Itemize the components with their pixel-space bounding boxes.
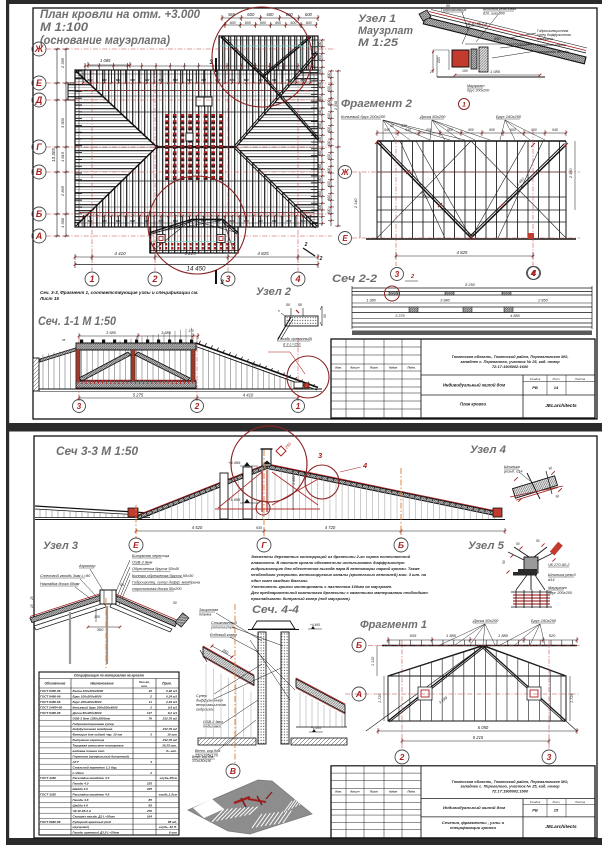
svg-text:95: 95 [62, 338, 66, 342]
svg-text:спецификации кровли: спецификации кровли [450, 825, 497, 830]
svg-text:брус 200x200: брус 200x200 [467, 89, 489, 93]
svg-text:+4.495: +4.495 [310, 623, 320, 627]
svg-text:15: 15 [30, 604, 34, 608]
svg-text:600: 600 [468, 128, 474, 132]
svg-text:ГОСТ 3282: ГОСТ 3282 [40, 776, 56, 780]
svg-text:Прим.: Прим. [162, 682, 172, 686]
svg-text:4 825: 4 825 [257, 251, 269, 256]
svg-text:0,92 м3: 0,92 м3 [166, 689, 177, 693]
svg-text:13 305: 13 305 [51, 148, 56, 162]
svg-text:540: 540 [401, 124, 407, 128]
svg-text:Лист: Лист [369, 366, 378, 370]
svg-text:L=20см: L=20см [73, 771, 85, 775]
svg-text:Стадия: Стадия [530, 800, 541, 804]
svg-text:1 390: 1 390 [60, 217, 65, 228]
svg-text:600: 600 [318, 164, 322, 170]
svg-text:Узел 5: Узел 5 [468, 540, 505, 552]
svg-text:600: 600 [327, 113, 331, 119]
svg-text:Узел 3: Узел 3 [43, 540, 78, 552]
svg-text:Б: Б [356, 640, 362, 650]
svg-text:600: 600 [260, 21, 266, 25]
svg-text:Доска 50x200: Доска 50x200 [419, 114, 446, 119]
svg-text:4 720: 4 720 [325, 525, 336, 530]
svg-text:4 880: 4 880 [510, 314, 520, 318]
svg-text:2 395: 2 395 [60, 57, 65, 69]
svg-text:d10, шаг 300: d10, шаг 300 [483, 12, 505, 16]
svg-text:прокладывать битумный ковер (п: прокладывать битумный ковер (под мауэрла… [251, 596, 351, 601]
svg-text:370x180x190: 370x180x190 [192, 759, 211, 763]
svg-text:600: 600 [318, 205, 322, 211]
svg-text:2 865: 2 865 [60, 185, 65, 197]
svg-text:200: 200 [437, 57, 441, 64]
svg-text:600: 600 [510, 128, 516, 132]
svg-text:ГОСТ 8486-86: ГОСТ 8486-86 [40, 700, 61, 704]
svg-text:545: 545 [552, 128, 558, 132]
svg-text:50: 50 [323, 314, 327, 318]
svg-text:0,24 м3: 0,24 м3 [166, 695, 177, 699]
svg-text:Г: Г [261, 540, 267, 550]
svg-text:АГУ: АГУ [72, 760, 80, 764]
svg-text:Сеч 3-3 М 1:50: Сеч 3-3 М 1:50 [56, 446, 139, 458]
svg-text:диффузионная: диффузионная [196, 699, 223, 703]
svg-text:Стеновой гвоздь 3мм L=90: Стеновой гвоздь 3мм L=90 [40, 573, 91, 578]
svg-text:Защитная: Защитная [199, 608, 218, 612]
svg-text:600: 600 [318, 123, 322, 129]
svg-text:Подп.: Подп. [408, 366, 416, 370]
svg-text:Кол.уч: Кол.уч [350, 366, 359, 370]
svg-text:600: 600 [275, 21, 281, 25]
svg-text:Шпилька резьбовая: Шпилька резьбовая [483, 7, 516, 11]
svg-text:4 520: 4 520 [192, 525, 203, 530]
svg-text:2: 2 [149, 705, 152, 709]
svg-text:100: 100 [462, 69, 468, 73]
svg-text:600: 600 [327, 72, 331, 78]
svg-text:необходимо устроить вентилируе: необходимо устроить вентилируемые каналы… [251, 572, 427, 577]
svg-text:Подп.: Подп. [408, 790, 416, 794]
svg-text:232,76 м2: 232,76 м2 [162, 738, 178, 742]
svg-text:ЧК 40-65-2-д: ЧК 40-65-2-д [466, 22, 487, 26]
svg-text:2 350: 2 350 [334, 101, 338, 111]
svg-text:OSB-3 9мм 1250x2500мм: OSB-3 9мм 1250x2500мм [73, 716, 111, 720]
svg-text:72:17:1908002:1600: 72:17:1908002:1600 [492, 364, 529, 369]
svg-text:5 215: 5 215 [473, 735, 484, 740]
svg-text:600: 600 [426, 128, 432, 132]
svg-text:600: 600 [318, 41, 322, 47]
svg-text:1 880: 1 880 [498, 633, 509, 638]
svg-text:600: 600 [305, 12, 313, 17]
svg-text:Индивидуальный жилой дом: Индивидуальный жилой дом [443, 805, 505, 810]
svg-text:Фрагмент 2: Фрагмент 2 [341, 98, 412, 110]
svg-text:Лист: Лист [369, 790, 378, 794]
svg-text:14 450: 14 450 [187, 266, 206, 273]
svg-text:3: 3 [150, 733, 152, 737]
svg-text:Шайба 4.0: Шайба 4.0 [73, 787, 89, 791]
svg-text:225: 225 [146, 782, 152, 786]
svg-text:935: 935 [410, 633, 417, 638]
svg-text:Стыкованный: Стыкованный [211, 621, 238, 625]
svg-text:600: 600 [286, 12, 294, 17]
svg-text:планка: планка [199, 613, 211, 617]
svg-text:Герметик (профильный битумный): Герметик (профильный битумный) [73, 754, 130, 758]
svg-text:Для предварительной компоновки: Для предварительной компоновки древесины… [250, 590, 428, 595]
svg-text:2: 2 [319, 256, 323, 262]
svg-text:2,64 м3: 2,64 м3 [165, 700, 177, 704]
svg-text:600: 600 [318, 69, 322, 75]
svg-text:2 350: 2 350 [569, 168, 573, 179]
svg-text:6 шт: 6 шт [169, 831, 177, 835]
svg-text:2: 2 [149, 771, 152, 775]
svg-text:JELarchitects: JELarchitects [545, 824, 577, 829]
svg-text:Гвозди армятый Д3,5 L=20мм: Гвозди армятый Д3,5 L=20мм [73, 831, 120, 835]
svg-text:4 410: 4 410 [114, 251, 126, 256]
svg-text:Раскладка гвоздями 4.8: Раскладка гвоздями 4.8 [73, 793, 110, 797]
svg-text:+1.655: +1.655 [228, 497, 241, 502]
svg-text:1 660: 1 660 [292, 475, 296, 485]
svg-text:3: 3 [395, 270, 400, 279]
svg-text:Гвозди 4.0: Гвозди 4.0 [73, 782, 89, 786]
svg-text:Маузрлат: Маузрлат [358, 25, 413, 37]
svg-text:Коньевый брус 200x200: Коньевый брус 200x200 [341, 114, 386, 119]
svg-text:545: 545 [384, 128, 390, 132]
svg-text:РВ: РВ [532, 385, 538, 390]
svg-text:ендовая планка тип.: ендовая планка тип. [73, 749, 106, 753]
svg-text:Обрешетка брусок 50x40: Обрешетка брусок 50x40 [132, 566, 180, 571]
svg-text:Торцевая антисепт-планировка: Торцевая антисепт-планировка [73, 744, 124, 748]
svg-text:(основание мауэрлата): (основание мауэрлата) [40, 35, 170, 47]
svg-text:(Гвоздь срезанный): (Гвоздь срезанный) [277, 336, 313, 341]
svg-text:В: В [230, 766, 236, 776]
svg-text:1 725: 1 725 [378, 693, 382, 703]
svg-text:Ж: Ж [34, 44, 44, 54]
svg-text:Карнизная планка: Карнизная планка [537, 43, 566, 47]
svg-text:1 085: 1 085 [490, 69, 501, 74]
svg-text:А: А [35, 231, 43, 241]
svg-text:4: 4 [149, 760, 152, 764]
svg-text:600: 600 [327, 181, 331, 187]
svg-text:Изм.: Изм. [335, 366, 341, 370]
svg-text:уплотнитель: уплотнитель [210, 626, 236, 630]
svg-text:Д: Д [35, 95, 43, 105]
svg-text:Брус 160x200: Брус 160x200 [531, 618, 557, 623]
svg-text:глубь. 82 П.: глубь. 82 П. [159, 825, 177, 829]
svg-text:Брус 160x200: Брус 160x200 [496, 114, 522, 119]
svg-text:глубь.1,5см: глубь.1,5см [159, 793, 178, 797]
svg-text:3 585: 3 585 [106, 330, 117, 335]
svg-text:2: 2 [304, 242, 308, 248]
svg-text:600: 600 [318, 96, 322, 102]
svg-text:Вент. кор.бла: Вент. кор.бла [195, 749, 220, 753]
svg-text:2 140: 2 140 [354, 198, 358, 209]
svg-text:85: 85 [149, 803, 153, 807]
svg-text:Сеч 2-2: Сеч 2-2 [332, 273, 377, 285]
svg-text:Узел 4: Узел 4 [470, 444, 506, 456]
svg-text:Гвозди 4.8: Гвозди 4.8 [73, 798, 89, 802]
svg-text:Е: Е [36, 78, 43, 88]
svg-text:11: 11 [149, 700, 152, 704]
svg-text:Тюменская область, Тюменский р: Тюменская область, Тюменский район, Пере… [452, 780, 569, 784]
svg-text:мембрана: мембрана [537, 37, 553, 41]
svg-text:1 880: 1 880 [446, 633, 457, 638]
svg-text:Фрагмент 1: Фрагмент 1 [360, 619, 427, 631]
svg-text:Е: Е [342, 234, 348, 243]
svg-text:16: 16 [149, 689, 153, 693]
svg-text:Мауэрлат: Мауэрлат [467, 84, 484, 88]
svg-text:5 215: 5 215 [184, 251, 196, 256]
svg-text:Коньевый брус 200x200x6000: Коньевый брус 200x200x6000 [73, 705, 118, 709]
svg-text:Брус 100x200x6000: Брус 100x200x6000 [73, 695, 102, 699]
svg-text:276: 276 [146, 809, 152, 813]
svg-text:Узел 1: Узел 1 [358, 13, 396, 25]
svg-text:4 410: 4 410 [243, 393, 254, 398]
svg-text:600: 600 [327, 127, 331, 133]
svg-text:ГОСТ 8486-86: ГОСТ 8486-86 [40, 689, 61, 693]
svg-text:Накладка доска 50мм: Накладка доска 50мм [40, 581, 80, 586]
svg-text:2: 2 [149, 695, 152, 699]
svg-text:8+ шт.: 8+ шт. [166, 749, 177, 753]
svg-text:Элементы деревянных конструкци: Элементы деревянных конструкций из древе… [251, 554, 411, 559]
svg-text:100: 100 [94, 615, 100, 619]
svg-text:А: А [355, 689, 362, 699]
svg-text:гидроизол.: гидроизол. [196, 708, 215, 712]
svg-text:600: 600 [318, 109, 322, 115]
svg-text:540: 540 [405, 128, 411, 132]
svg-text:Фетиция для гибкой чер. 10 мм: Фетиция для гибкой чер. 10 мм [73, 733, 123, 737]
svg-text:10 шт: 10 шт [167, 733, 177, 737]
svg-text:Спецификация по материалам на: Спецификация по материалам на кровлю [74, 674, 144, 678]
svg-text:164: 164 [147, 814, 152, 818]
svg-text:4: 4 [531, 269, 537, 278]
svg-text:стропильная доска 50x200: стропильная доска 50x200 [132, 586, 182, 591]
svg-text:Обозначение: Обозначение [45, 682, 66, 686]
svg-text:подшивка: подшивка [203, 725, 220, 729]
svg-text:Саморез гвоздь Д3 L=20мм: Саморез гвоздь Д3 L=20мм [73, 814, 116, 818]
svg-text:В: В [36, 167, 43, 177]
svg-text:Брус 200x200x6000: Брус 200x200x6000 [73, 700, 102, 704]
svg-text:600: 600 [306, 21, 312, 25]
svg-text:3 370: 3 370 [395, 314, 405, 318]
svg-text:Аэратор: Аэратор [78, 563, 96, 568]
svg-text:мауэрлат): мауэрлат) [73, 825, 90, 829]
svg-text:3 980: 3 980 [440, 299, 450, 303]
svg-text:8,2 м3: 8,2 м3 [168, 711, 177, 715]
svg-text:600: 600 [327, 154, 331, 160]
svg-text:3: 3 [547, 752, 552, 762]
svg-text:№док: №док [389, 790, 398, 794]
svg-text:Б: Б [36, 209, 43, 219]
svg-text:ГОСТ 8486-86: ГОСТ 8486-86 [40, 695, 61, 699]
svg-text:шт.: шт. [141, 684, 147, 688]
svg-text:50: 50 [536, 539, 540, 543]
svg-text:600: 600 [327, 140, 331, 146]
svg-text:1 815: 1 815 [60, 151, 65, 162]
svg-text:600: 600 [327, 168, 331, 174]
svg-text:600: 600 [327, 208, 331, 214]
svg-text:брус 200x200: брус 200x200 [548, 590, 573, 595]
svg-text:Лист 15: Лист 15 [39, 296, 59, 301]
svg-text:4: 4 [362, 461, 368, 470]
svg-text:600: 600 [489, 128, 495, 132]
svg-text:2: 2 [194, 402, 200, 411]
svg-text:Г: Г [36, 142, 42, 152]
svg-text:Лист: Лист [551, 377, 560, 381]
svg-text:Узел 2: Узел 2 [256, 286, 291, 298]
svg-text:600: 600 [447, 128, 453, 132]
svg-text:18,25 шт.: 18,25 шт. [162, 744, 177, 748]
svg-text:600: 600 [247, 12, 255, 17]
svg-text:50: 50 [516, 542, 520, 546]
svg-text:Контро обрешетка брусок 50x30: Контро обрешетка брусок 50x30 [132, 573, 194, 578]
svg-text:1 725: 1 725 [570, 693, 574, 703]
svg-text:1: 1 [89, 274, 94, 284]
svg-text:Стадия: Стадия [530, 377, 541, 381]
svg-text:1 110: 1 110 [371, 656, 375, 666]
svg-text:Доска 50x200x6000: Доска 50x200x6000 [72, 711, 102, 715]
svg-text:1: 1 [462, 102, 466, 109]
svg-text:d 3 L=150: d 3 L=150 [283, 342, 301, 347]
svg-text:25: 25 [30, 596, 34, 601]
svg-text:2: 2 [151, 274, 157, 284]
svg-text:Б: Б [398, 540, 404, 550]
svg-text:Шпилька: Шпилька [504, 465, 520, 469]
svg-text:3 585: 3 585 [161, 330, 172, 335]
svg-text:4 825: 4 825 [457, 250, 469, 255]
svg-text:+4.495: +4.495 [228, 460, 241, 465]
svg-text:Балка 100x200x6000: Балка 100x200x6000 [73, 689, 104, 693]
svg-text:ГОСТ 8486-86: ГОСТ 8486-86 [40, 711, 61, 715]
svg-text:600: 600 [245, 21, 251, 25]
svg-text:один скат каждого Вальмы.: один скат каждого Вальмы. [251, 578, 308, 583]
svg-text:600: 600 [318, 150, 322, 156]
svg-text:935: 935 [256, 526, 262, 530]
svg-text:72:17:1908002:1600: 72:17:1908002:1600 [492, 789, 529, 793]
svg-text:600: 600 [230, 21, 236, 25]
svg-text:Гидроизоляционная супер: Гидроизоляционная супер [73, 722, 114, 726]
svg-text:ЧК 40-65-2-д: ЧК 40-65-2-д [73, 809, 92, 813]
svg-text:76: 76 [149, 716, 153, 720]
svg-text:Индивидуальный жилой дом: Индивидуальный жилой дом [443, 383, 506, 388]
svg-text:Шайба 4.8: Шайба 4.8 [73, 803, 89, 807]
svg-text:8 250: 8 250 [465, 283, 475, 287]
svg-text:Супер: Супер [196, 694, 207, 698]
svg-text:600: 600 [327, 86, 331, 92]
svg-text:Сечения, фрагменты , узлы и: Сечения, фрагменты , узлы и [442, 820, 505, 825]
svg-text:Е: Е [133, 540, 139, 550]
svg-text:1 380: 1 380 [366, 299, 376, 303]
svg-text:Листов: Листов [574, 800, 586, 804]
svg-text:Битумная черепица: Битумная черепица [73, 738, 105, 742]
svg-text:РВ: РВ [532, 809, 538, 813]
svg-text:0,9 м3: 0,9 м3 [168, 705, 177, 709]
svg-text:3: 3 [77, 402, 82, 411]
svg-text:ветрозащитная: ветрозащитная [196, 703, 226, 707]
svg-text:Ендовый ковер: Ендовый ковер [210, 633, 237, 637]
svg-text:План кровли на отм. +3.000: План кровли на отм. +3.000 [40, 9, 201, 21]
svg-text:600: 600 [318, 82, 322, 88]
svg-text:JELarchitects: JELarchitects [545, 403, 577, 409]
svg-text:1: 1 [296, 402, 301, 411]
svg-text:Утеплитель кровли монтировать: Утеплитель кровли монтировать с нахлесто… [251, 584, 392, 589]
svg-text:влажности. В настиле кровли об: влажности. В настиле кровли обязательно … [251, 560, 405, 565]
svg-text:50: 50 [502, 560, 506, 564]
svg-text:Изм.: Изм. [335, 790, 341, 794]
svg-text:резьб. d14: резьб. d14 [503, 470, 523, 474]
svg-text:600: 600 [290, 21, 296, 25]
svg-text:600: 600 [327, 195, 331, 201]
svg-text:600: 600 [531, 128, 537, 132]
svg-text:М 1:100: М 1:100 [40, 22, 89, 34]
svg-text:М 1:25: М 1:25 [358, 37, 399, 49]
svg-text:OSB-3 9мм: OSB-3 9мм [132, 560, 153, 565]
svg-text:+1.655: +1.655 [311, 726, 321, 730]
svg-text:2: 2 [410, 274, 414, 280]
svg-text:232,76 м2: 232,76 м2 [162, 727, 178, 731]
svg-text:ЧК 270-90-2: ЧК 270-90-2 [548, 562, 570, 567]
svg-text:Доска 50x200: Доска 50x200 [472, 618, 499, 623]
svg-text:западнее с. Перевалово, участо: западнее с. Перевалово, участок № 25, ка… [460, 785, 560, 789]
svg-text:85 м2,: 85 м2, [168, 820, 177, 824]
svg-text:Кронштейн желоба: Кронштейн желоба [537, 50, 569, 54]
svg-text:ГОСТ 3282: ГОСТ 3282 [40, 793, 56, 797]
svg-text:600: 600 [318, 55, 322, 61]
svg-text:5 275: 5 275 [133, 393, 144, 398]
svg-text:50: 50 [173, 601, 177, 605]
svg-text:Битумная черепица: Битумная черепица [132, 553, 170, 558]
svg-text:225: 225 [146, 787, 152, 791]
svg-text:600: 600 [318, 191, 322, 197]
svg-text:520: 520 [549, 633, 556, 638]
svg-text:ГОСТ 6882-88: ГОСТ 6882-88 [40, 820, 61, 824]
svg-text:Сеч. 1-1 М 1:50: Сеч. 1-1 М 1:50 [38, 316, 117, 328]
svg-text:232,76 м2: 232,76 м2 [162, 716, 178, 720]
svg-text:3 500: 3 500 [60, 117, 65, 128]
svg-text:Наименование: Наименование [90, 682, 114, 686]
svg-text:170: 170 [188, 329, 194, 333]
svg-text:14: 14 [554, 385, 559, 390]
svg-text:гидроизоляцию для обеспечения: гидроизоляцию для обеспечения выхода пар… [251, 566, 421, 571]
svg-text:Гидроизоляц. супер дифф. мембр: Гидроизоляц. супер дифф. мембрана [132, 579, 201, 584]
svg-text:Сеч. 4-4: Сеч. 4-4 [252, 604, 299, 616]
svg-text:137: 137 [147, 711, 152, 715]
svg-text:Листов: Листов [574, 377, 586, 381]
svg-text:600: 600 [327, 100, 331, 106]
svg-text:План кровли: План кровли [460, 402, 486, 407]
svg-text:Стальной герметик 1.2 бар,: Стальной герметик 1.2 бар, [73, 765, 118, 769]
svg-text:№док: №док [389, 366, 398, 370]
svg-text:Ж: Ж [340, 168, 349, 177]
svg-text:2: 2 [399, 752, 405, 762]
svg-text:Раскладка гвоздями 4.0: Раскладка гвоздями 4.0 [73, 776, 110, 780]
svg-text:650: 650 [494, 36, 501, 41]
svg-text:d14: d14 [548, 577, 555, 582]
svg-text:глубь.25см: глубь.25см [160, 776, 178, 780]
svg-text:6 050: 6 050 [478, 725, 489, 730]
svg-text:диффузионная мембрана: диффузионная мембрана [73, 727, 113, 731]
svg-text:60: 60 [390, 124, 394, 128]
svg-text:600: 600 [267, 12, 275, 17]
svg-text:600: 600 [318, 177, 322, 183]
svg-text:3: 3 [225, 274, 230, 284]
svg-text:Лист: Лист [551, 800, 560, 804]
svg-text:565: 565 [228, 12, 236, 17]
svg-text:Гидроизоляция: Гидроизоляция [441, 8, 466, 12]
svg-text:Сеч. 3-3, Фрагмент 1, соответс: Сеч. 3-3, Фрагмент 1, соответствующие уз… [40, 289, 199, 295]
svg-text:85: 85 [149, 798, 153, 802]
svg-text:300: 300 [97, 627, 104, 632]
svg-text:Рубероид армятый (под: Рубероид армятый (под [73, 820, 112, 824]
svg-text:Кол.уч: Кол.уч [351, 790, 360, 794]
svg-text:ГОСТ 24454-80: ГОСТ 24454-80 [40, 705, 62, 709]
svg-text:2 850: 2 850 [537, 299, 548, 303]
